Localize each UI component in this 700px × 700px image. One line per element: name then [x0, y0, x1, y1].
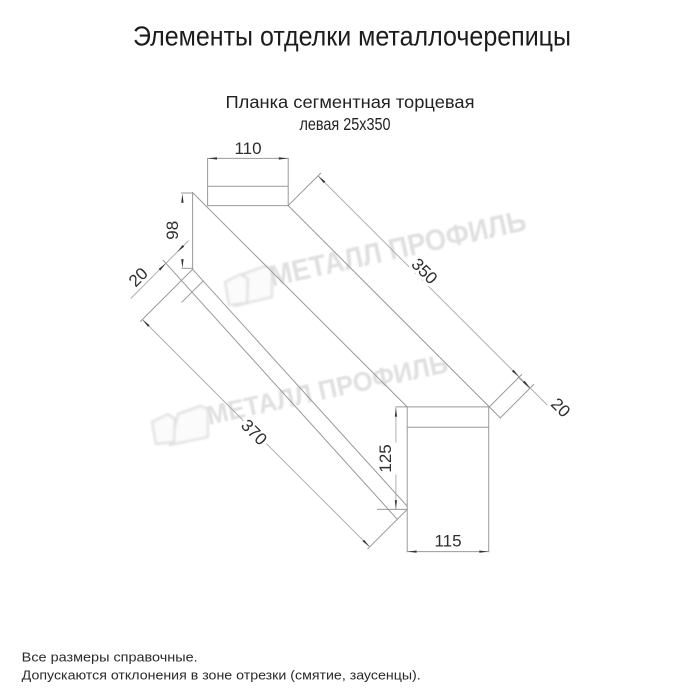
- svg-text:98: 98: [163, 221, 182, 240]
- svg-text:Допускаются отклонения в зоне: Допускаются отклонения в зоне отрезки (с…: [22, 669, 421, 683]
- svg-text:125: 125: [376, 444, 395, 472]
- svg-text:левая 25x350: левая 25x350: [300, 114, 391, 134]
- svg-text:Элементы отделки металлочерепи: Элементы отделки металлочерепицы: [133, 21, 571, 52]
- svg-text:Все размеры справочные.: Все размеры справочные.: [22, 651, 198, 665]
- svg-text:110: 110: [234, 139, 261, 158]
- svg-text:115: 115: [434, 532, 461, 551]
- svg-text:Планка сегментная торцевая: Планка сегментная торцевая: [226, 92, 475, 112]
